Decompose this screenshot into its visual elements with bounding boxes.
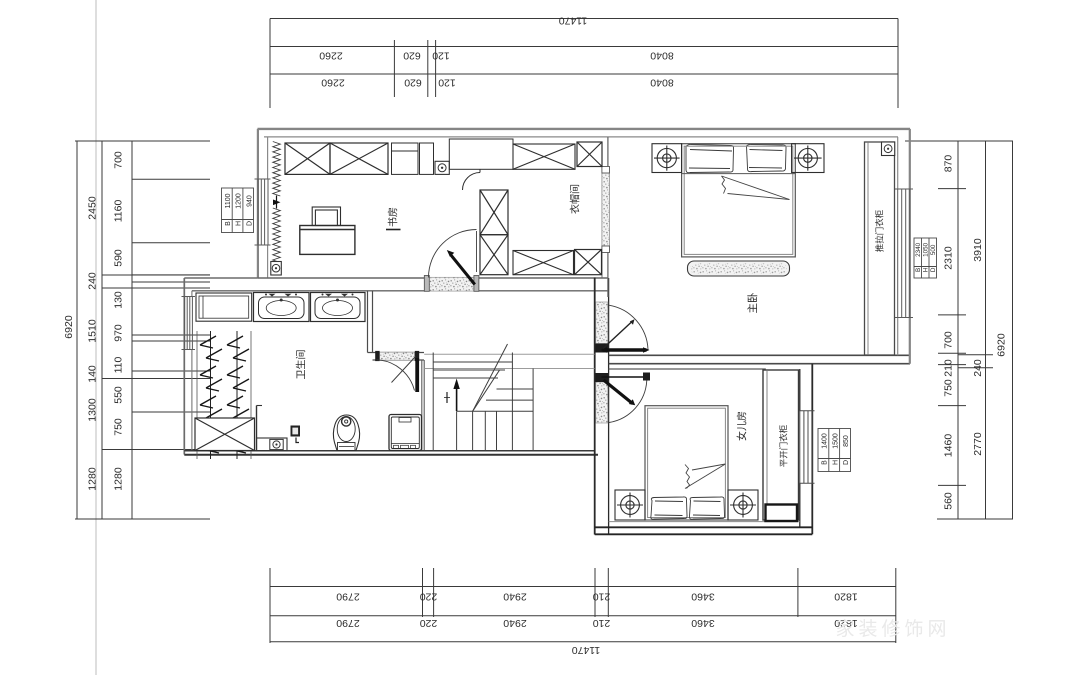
- svg-text:B: B: [822, 460, 829, 465]
- svg-text:2260: 2260: [319, 50, 343, 62]
- svg-text:3460: 3460: [691, 591, 715, 603]
- svg-text:1820: 1820: [834, 591, 858, 603]
- svg-text:700: 700: [113, 151, 125, 169]
- svg-text:210: 210: [943, 359, 955, 377]
- svg-text:1500: 1500: [832, 433, 839, 449]
- svg-text:750: 750: [943, 379, 955, 397]
- svg-text:3910: 3910: [972, 238, 984, 262]
- svg-text:11470: 11470: [572, 644, 601, 656]
- svg-text:2770: 2770: [972, 432, 984, 456]
- svg-text:220: 220: [420, 591, 438, 603]
- svg-text:11470: 11470: [559, 15, 588, 27]
- svg-text:2340: 2340: [915, 242, 922, 257]
- svg-text:主卧: 主卧: [746, 292, 759, 313]
- svg-text:620: 620: [404, 77, 422, 89]
- svg-text:H: H: [832, 460, 839, 465]
- svg-text:1300: 1300: [87, 398, 99, 422]
- svg-text:2790: 2790: [336, 591, 360, 603]
- svg-text:750: 750: [113, 418, 125, 436]
- svg-text:550: 550: [113, 386, 125, 404]
- svg-text:940: 940: [246, 195, 253, 207]
- svg-text:210: 210: [593, 591, 611, 603]
- svg-text:2310: 2310: [943, 246, 955, 270]
- svg-text:220: 220: [420, 617, 438, 629]
- svg-text:卫生间: 卫生间: [295, 350, 308, 380]
- svg-text:平开门衣柜: 平开门衣柜: [779, 424, 789, 467]
- svg-text:1280: 1280: [113, 467, 125, 491]
- svg-text:700: 700: [943, 331, 955, 349]
- svg-text:240: 240: [972, 359, 984, 377]
- svg-text:500: 500: [930, 244, 937, 255]
- svg-text:1460: 1460: [943, 434, 955, 458]
- svg-text:120: 120: [432, 50, 450, 62]
- svg-text:推拉门衣柜: 推拉门衣柜: [875, 209, 885, 252]
- svg-text:女儿房: 女儿房: [736, 411, 749, 441]
- svg-text:6920: 6920: [996, 333, 1008, 357]
- svg-text:2260: 2260: [321, 77, 345, 89]
- svg-text:D: D: [843, 460, 850, 465]
- svg-text:2940: 2940: [503, 591, 527, 603]
- svg-text:1280: 1280: [87, 467, 99, 491]
- svg-text:B: B: [915, 268, 922, 272]
- svg-text:书房: 书房: [387, 207, 400, 227]
- svg-text:120: 120: [438, 77, 456, 89]
- svg-text:1100: 1100: [225, 193, 232, 208]
- svg-text:970: 970: [113, 324, 125, 342]
- svg-text:870: 870: [943, 155, 955, 173]
- svg-text:1510: 1510: [87, 319, 99, 343]
- svg-text:240: 240: [87, 272, 99, 290]
- svg-text:B: B: [225, 221, 232, 226]
- svg-text:560: 560: [943, 492, 955, 510]
- svg-text:衣帽间: 衣帽间: [569, 184, 582, 214]
- svg-text:130: 130: [113, 291, 125, 309]
- svg-text:590: 590: [113, 249, 125, 267]
- svg-text:2790: 2790: [336, 617, 360, 629]
- svg-text:H: H: [236, 221, 243, 226]
- svg-text:1200: 1200: [236, 193, 243, 209]
- svg-text:620: 620: [403, 50, 421, 62]
- svg-text:D: D: [246, 221, 253, 226]
- svg-text:1160: 1160: [113, 200, 125, 223]
- svg-text:1050: 1050: [923, 242, 930, 257]
- svg-text:110: 110: [113, 356, 125, 373]
- svg-text:210: 210: [593, 617, 611, 629]
- svg-text:2450: 2450: [87, 196, 99, 220]
- svg-text:6920: 6920: [63, 315, 75, 339]
- svg-text:2940: 2940: [503, 617, 527, 629]
- svg-text:D: D: [930, 267, 937, 272]
- svg-text:3460: 3460: [691, 617, 715, 629]
- svg-text:8040: 8040: [650, 77, 674, 89]
- svg-text:H: H: [923, 267, 930, 272]
- svg-text:1400: 1400: [822, 433, 829, 449]
- svg-text:850: 850: [843, 435, 850, 447]
- svg-text:家装修饰网: 家装修饰网: [835, 618, 950, 640]
- svg-text:8040: 8040: [650, 50, 674, 62]
- svg-text:140: 140: [87, 365, 99, 383]
